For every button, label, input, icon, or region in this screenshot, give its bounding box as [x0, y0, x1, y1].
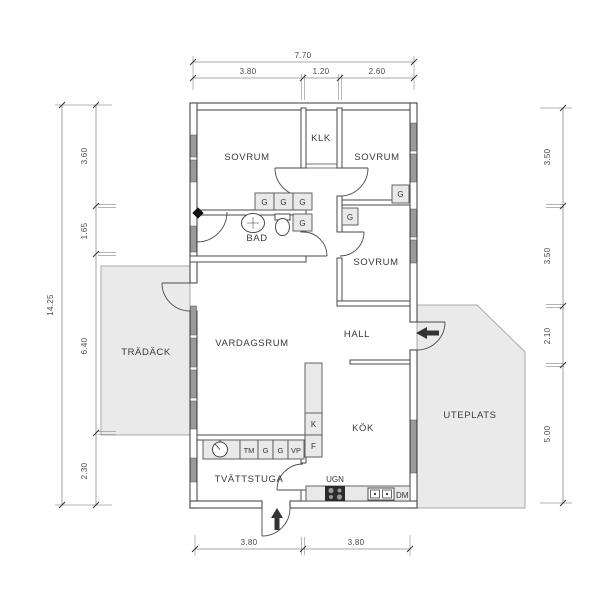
dim-seg: 6.40: [80, 337, 89, 354]
window: [411, 154, 417, 182]
dimension-top: 7.70 3.80 1.20 2.60: [190, 51, 417, 100]
wall-segment: [190, 501, 262, 508]
wall-segment: [337, 301, 410, 306]
wall-segment: [337, 258, 342, 306]
wardrobe-label: G: [278, 446, 284, 455]
dim-seg: 3.50: [543, 148, 552, 165]
closet-label: KLK: [311, 133, 331, 144]
dim-total-left: 14.25: [46, 294, 55, 316]
dim-seg: 3.60: [80, 147, 89, 164]
wardrobe-label: G: [263, 446, 269, 455]
sink-dot: [374, 493, 376, 495]
window: [191, 306, 197, 335]
wardrobe-label: G: [280, 198, 286, 207]
shower-icon: [197, 212, 227, 242]
wall-segment: [337, 108, 342, 168]
burner: [338, 489, 342, 493]
dim-total-top: 7.70: [295, 51, 312, 60]
window: [191, 226, 197, 252]
window: [411, 123, 417, 151]
laundry-label: TVÄTTSTUGA: [215, 474, 284, 485]
wardrobe-label: G: [261, 198, 267, 207]
burner: [328, 488, 333, 493]
wardrobe-label: G: [299, 219, 305, 228]
freezer-label: F: [311, 442, 316, 451]
window: [191, 401, 197, 429]
dim-seg: 5.00: [543, 425, 552, 442]
deck-label: TRÄDÄCK: [121, 347, 171, 358]
washer-label: TM: [244, 446, 255, 455]
dim-seg: 1.20: [313, 67, 330, 76]
dim-seg: 3.50: [543, 247, 552, 264]
bedroom2-label: SOVRUM: [354, 152, 399, 163]
dim-seg: 2.60: [369, 67, 386, 76]
wall-segment: [301, 490, 306, 501]
wardrobe-label: G: [299, 198, 305, 207]
dim-seg: 2.10: [543, 327, 552, 344]
wall-segment: [337, 196, 342, 232]
livingroom-label: VARDAGSRUM: [215, 338, 288, 349]
heatpump-label: VP: [291, 446, 301, 455]
laundry-fixtures: TM G G VP: [203, 440, 304, 460]
burner: [329, 495, 333, 499]
hall-label: HALL: [344, 329, 370, 340]
wall-segment: [190, 256, 306, 262]
wall-segment: [290, 501, 417, 508]
wall-segment: [350, 360, 410, 364]
window: [191, 160, 197, 182]
floor-plan-drawing: TRÄDÄCK UTEPLATS: [0, 0, 615, 615]
window: [191, 135, 197, 157]
bathroom-door: [303, 232, 327, 256]
bedroom3-door: [340, 232, 364, 256]
stove-icon: [325, 486, 345, 501]
kitchen-label: KÖK: [352, 423, 374, 434]
wardrobe-label: G: [347, 213, 353, 222]
dishwasher-label: DM: [396, 491, 409, 500]
floor-plan-page: TRÄDÄCK UTEPLATS: [0, 0, 615, 615]
sink-dot: [386, 493, 388, 495]
dim-seg: 3.80: [348, 538, 365, 547]
window: [191, 338, 197, 367]
window: [191, 370, 197, 398]
dim-seg: 3.80: [241, 538, 258, 547]
bathroom-label: BAD: [246, 233, 267, 244]
wardrobe-label: G: [397, 190, 403, 199]
window: [191, 458, 197, 482]
dim-seg: 1.65: [80, 222, 89, 239]
burner: [337, 494, 342, 499]
oven-label: UGN: [326, 475, 344, 484]
wall-segment: [197, 435, 306, 440]
fridge-label: K: [311, 420, 317, 429]
dim-seg: 2.30: [80, 462, 89, 479]
dimension-bottom: 3.80 3.80: [192, 535, 413, 556]
wall-segment: [301, 108, 306, 168]
bedroom3-label: SOVRUM: [353, 257, 398, 268]
window: [411, 240, 417, 263]
bedroom1-door: [275, 168, 303, 196]
window: [411, 209, 417, 237]
dim-ticks: [59, 102, 99, 508]
exit-arrow-icon: [271, 508, 283, 530]
window: [411, 420, 417, 473]
dim-seg: 3.80: [240, 67, 257, 76]
patio-label: UTEPLATS: [443, 410, 496, 421]
toilet-icon: [276, 219, 290, 236]
bedroom2-door: [340, 168, 368, 196]
dimension-right: 3.50 3.50 2.10 5.00: [540, 105, 572, 506]
bedroom1-label: SOVRUM: [224, 152, 269, 163]
